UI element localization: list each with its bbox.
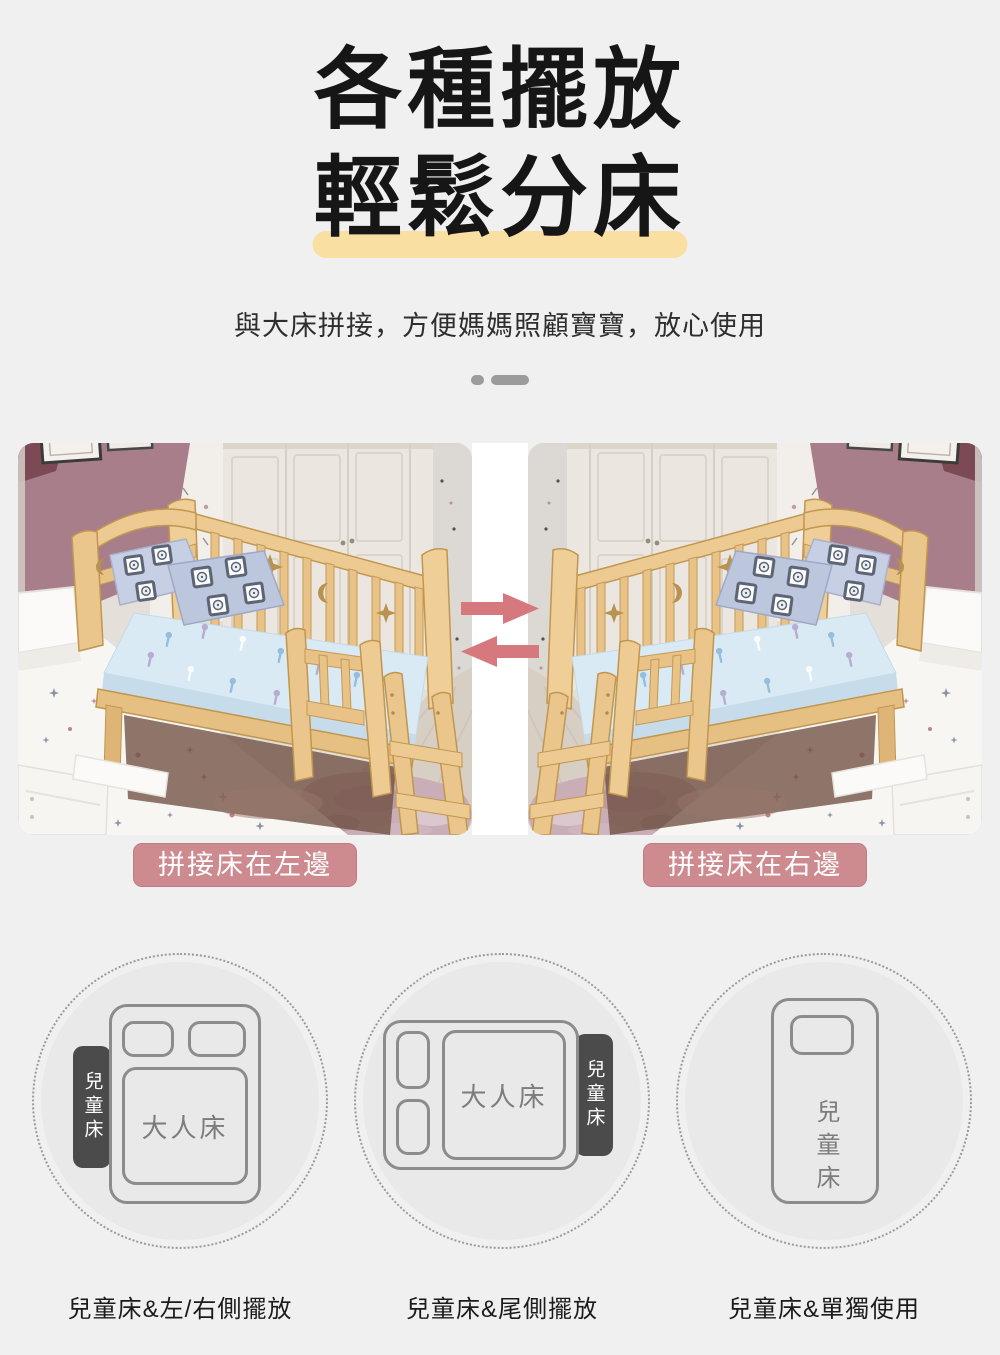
pillow-shape (790, 1015, 854, 1055)
arrow-right-icon (461, 593, 539, 624)
photo-bed-attached-left (18, 443, 472, 835)
adult-mattress: 大人床 (122, 1067, 248, 1185)
photo-badges-row: 拼接床在左邊 拼接床在右邊 (0, 843, 1000, 887)
bedroom-photo-illustration-mirrored (528, 443, 982, 835)
bedroom-photo-illustration (18, 443, 472, 835)
child-bed-tag: 兒童床 (575, 1034, 613, 1156)
pillow-shape (122, 1021, 174, 1057)
page-title-line-1: 各種擺放 (0, 36, 1000, 144)
pillow-shape (188, 1021, 246, 1057)
product-infographic-page: 各種擺放 輕鬆分床 與大床拼接，方便媽媽照顧寶寶，放心使用 拼接床在左邊 (0, 0, 1000, 1355)
layout-circle-standalone: 兒童床 (676, 953, 972, 1249)
arrow-left-icon (461, 636, 539, 667)
header: 各種擺放 輕鬆分床 (0, 36, 1000, 252)
layout-diagrams-row: 兒童床 大人床 兒童床 (32, 953, 972, 1249)
badge-right-position: 拼接床在右邊 (643, 843, 867, 887)
layout-disc-side: 兒童床 大人床 (41, 962, 319, 1240)
divider-dot (471, 375, 484, 385)
page-title-line-2: 輕鬆分床 (0, 144, 1000, 252)
swap-arrows (461, 593, 539, 667)
divider-dash (491, 375, 529, 385)
badge-left-position: 拼接床在左邊 (133, 843, 357, 887)
pillow-shape (396, 1099, 430, 1155)
adult-bed-label: 大人床 (460, 1077, 547, 1114)
layout-circle-side: 兒童床 大人床 (32, 953, 328, 1249)
caption-side-placement: 兒童床&左/右側擺放 (32, 1289, 328, 1324)
page-subtitle: 與大床拼接，方便媽媽照顧寶寶，放心使用 (0, 304, 1000, 343)
adult-mattress: 大人床 (442, 1030, 566, 1160)
layout-captions-row: 兒童床&左/右側擺放 兒童床&尾側擺放 兒童床&單獨使用 (32, 1289, 972, 1324)
adult-bed-outline: 大人床 (109, 1004, 261, 1204)
child-bed-tag: 兒童床 (73, 1046, 111, 1168)
dot-dash-divider (0, 375, 1000, 385)
child-bed-outline: 兒童床 (771, 998, 879, 1204)
layout-disc-foot: 兒童床 大人床 (363, 962, 641, 1240)
adult-bed-outline: 大人床 (383, 1020, 579, 1170)
photo-bed-attached-right (528, 443, 982, 835)
caption-standalone: 兒童床&單獨使用 (676, 1289, 972, 1324)
adult-bed-label: 大人床 (141, 1108, 228, 1145)
caption-foot-placement: 兒童床&尾側擺放 (354, 1289, 650, 1324)
pillow-shape (396, 1031, 430, 1089)
layout-disc-standalone: 兒童床 (685, 962, 963, 1240)
layout-circle-foot: 兒童床 大人床 (354, 953, 650, 1249)
child-bed-label: 兒童床 (813, 1099, 837, 1198)
photo-comparison-row (0, 443, 1000, 835)
